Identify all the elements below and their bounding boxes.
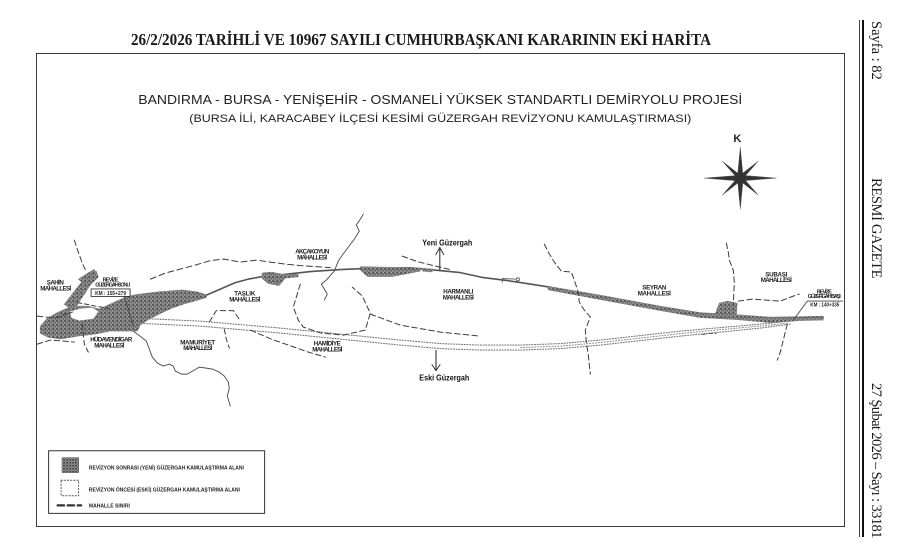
- svg-text:MAHALLESİ: MAHALLESİ: [40, 286, 71, 293]
- svg-text:MAHALLESİ: MAHALLESİ: [94, 342, 124, 349]
- svg-text:MAHALLESİ: MAHALLESİ: [638, 290, 671, 297]
- svg-text:MAHALLESİ: MAHALLESİ: [312, 346, 342, 353]
- svg-text:MAHALLESİ: MAHALLESİ: [183, 345, 212, 352]
- svg-text:(BURSA İLİ, KARACABEY İLÇESİ K: (BURSA İLİ, KARACABEY İLÇESİ KESİMİ GÜZE…: [189, 112, 691, 125]
- svg-text:MAHALLESİ: MAHALLESİ: [761, 277, 792, 284]
- svg-text:REVİZYON SONRASI (YENİ) GÜZERG: REVİZYON SONRASI (YENİ) GÜZERGAH KAMULAŞ…: [89, 464, 244, 471]
- svg-text:KM : 140+335: KM : 140+335: [810, 302, 839, 308]
- svg-text:MAHALLESİ: MAHALLESİ: [297, 254, 327, 261]
- svg-text:KM : 155+279: KM : 155+279: [95, 291, 126, 297]
- svg-text:MAHALLE SINIRI: MAHALLE SINIRI: [89, 504, 130, 510]
- svg-text:MAHALLESİ: MAHALLESİ: [443, 295, 474, 302]
- svg-text:REVİZYON ÖNCESİ (ESKİ) GÜZERGA: REVİZYON ÖNCESİ (ESKİ) GÜZERGAH KAMULAŞT…: [89, 487, 240, 494]
- svg-text:K: K: [733, 133, 741, 145]
- svg-text:GÜZERGAH BAŞI: GÜZERGAH BAŞI: [808, 293, 841, 300]
- svg-text:MAHALLESİ: MAHALLESİ: [229, 296, 260, 303]
- svg-text:Eski Güzergah: Eski Güzergah: [419, 372, 469, 382]
- svg-text:BANDIRMA - BURSA - YENİŞEHİR -: BANDIRMA - BURSA - YENİŞEHİR - OSMANELİ …: [138, 92, 742, 107]
- svg-text:Yeni Güzergah: Yeni Güzergah: [422, 238, 472, 248]
- svg-text:GÜZERGAH SONU: GÜZERGAH SONU: [95, 281, 130, 288]
